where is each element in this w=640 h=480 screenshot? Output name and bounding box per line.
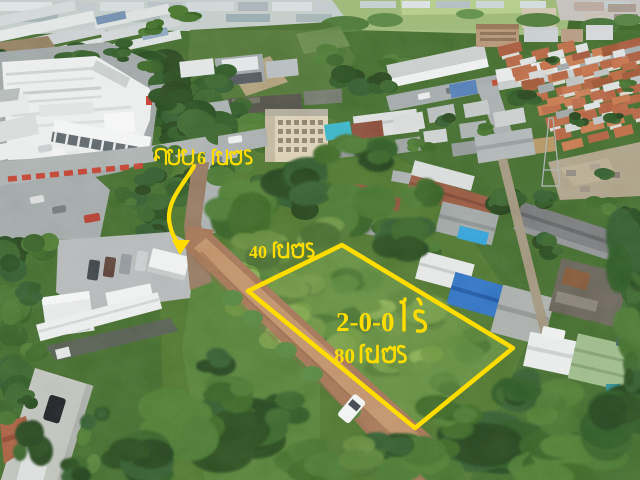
svg-text:40: 40 <box>249 242 267 262</box>
svg-text:6: 6 <box>197 148 206 168</box>
svg-text:2-0-0: 2-0-0 <box>336 307 394 337</box>
svg-text:80: 80 <box>334 344 355 368</box>
